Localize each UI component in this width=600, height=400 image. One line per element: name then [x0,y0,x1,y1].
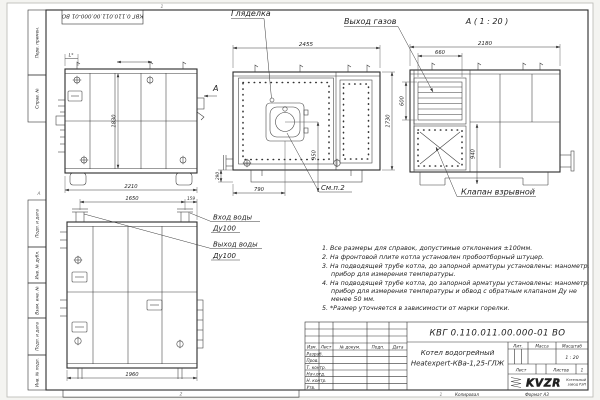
dim-2180: 2180 [478,41,493,47]
dim-600: 600 [400,95,406,106]
water-inlet-label: Вход воды [213,214,253,222]
blueprint-sheet: 1 А Перв. примен. Справ. № Подп. и дата … [0,0,600,400]
row-tkontr: Т. контр. [307,365,326,370]
stamp-podp-data-1: Подп. и дата [35,209,40,238]
scale-value: 1 : 20 [565,355,578,361]
scale-label: Масштаб [562,344,582,349]
mass-label: Масса [535,344,549,349]
water-inlet-dn: Ду100 [212,225,237,233]
sheets-value: 1 [581,368,584,373]
row-nkontr: Н. контр. [307,378,327,383]
sheets-label: Листов [552,368,569,373]
col-data: Дата [392,344,404,349]
col-doc: № докум. [339,344,361,349]
zone-mark-top: 1 [161,4,164,10]
dim-660: 660 [435,50,446,56]
row-prov: Пров. [307,358,319,363]
flue-outlet-label: Выход газов [344,17,397,26]
dim-1730: 1730 [386,114,392,128]
dim-l-star: L* [69,53,75,59]
sheet-label: Лист [515,368,527,373]
water-outlet-label: Выход воды [213,241,258,249]
fold-mark-left: А [36,191,40,197]
dim-159: 159 [187,196,195,201]
sheet-mark-bottom: 1 [440,392,443,397]
row-razrab: Разраб. [307,352,323,357]
copied-label: Копировал [455,392,479,397]
col-list: Лист [320,344,332,349]
designation-stamp-text: КВГ 0.110.011.00.000-01 ВО [61,13,143,19]
note-4: 4. На подводящей трубе котла, до запорно… [322,280,590,305]
section-arrow-label: А [212,84,218,93]
technical-notes: 1. Все размеры для справок, допустимые о… [322,245,590,314]
note-2: 2. На фронтовой плите котла установлен п… [322,254,590,262]
dim-290: 290 [215,172,220,180]
dim-1650: 1650 [125,196,139,202]
dim-1960: 1960 [125,372,139,378]
dim-2210: 2210 [124,184,138,190]
col-izm: Изм. [307,344,317,349]
stamp-podp-data-2: Подп. и дата [35,322,40,351]
format-label: Формат А3 [525,392,549,397]
note-5: 5. *Размер уточняется в зависимости от м… [322,305,590,313]
row-nachotd: Нач.отд. [307,372,326,377]
note-3: 3. На подводящей трубе котла, до запорно… [322,263,590,280]
explosion-valve-label: Клапан взрывной [461,188,535,197]
product-name-1: Котел водогрейный [421,349,495,357]
logo-text: KVZR [526,378,561,390]
dim-790: 790 [254,187,265,193]
dim-940: 940 [471,148,477,159]
zone-mark-bottom: 2 [180,392,183,398]
dim-1830: 1830 [112,114,118,128]
stamp-sprav-no: Справ. № [35,88,40,109]
logo-caption-1: Котельный [566,378,587,382]
see-item-label: См.п.2 [321,184,345,192]
product-name-2: Heatexpert-КВа-1,25-ГЛЖ [411,360,505,368]
logo-caption-2: завод РЭП [568,383,587,387]
stamp-vzam-inv: Взам. инв. № [35,286,40,315]
dim-950: 950 [312,149,318,160]
designation-main: КВГ 0.110.011.00.000-01 ВО [430,329,566,339]
col-podp: Подп. [372,344,385,349]
note-1: 1. Все размеры для справок, допустимые о… [322,245,590,253]
row-utv: Утв. [307,385,316,390]
dim-2455: 2455 [299,42,314,48]
lit-label: Лит. [512,344,523,349]
stamp-perv-primen: Перв. примен. [35,27,40,58]
stamp-inv-podl: Инв. № подл. [35,358,40,387]
sight-glass-label: Гляделка [231,9,271,18]
water-outlet-dn: Ду100 [212,252,237,260]
drawing-canvas: 1 А Перв. примен. Справ. № Подп. и дата … [0,0,600,400]
stamp-inv-dubl: Инв. № дубл. [35,251,40,280]
view-a-title: А ( 1 : 20 ) [465,17,508,26]
